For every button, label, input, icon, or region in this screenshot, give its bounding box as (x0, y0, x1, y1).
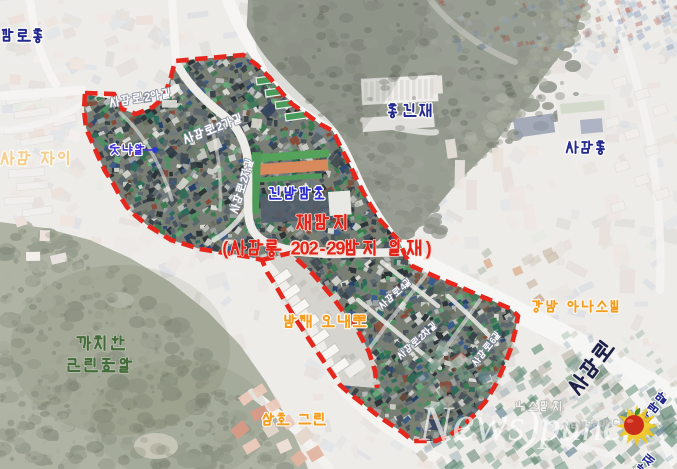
svg-text:-: - (319, 239, 325, 259)
svg-text:): ) (426, 239, 432, 259)
svg-text:(: ( (222, 239, 228, 259)
svg-text:9: 9 (335, 239, 345, 259)
svg-text:2: 2 (309, 239, 319, 259)
